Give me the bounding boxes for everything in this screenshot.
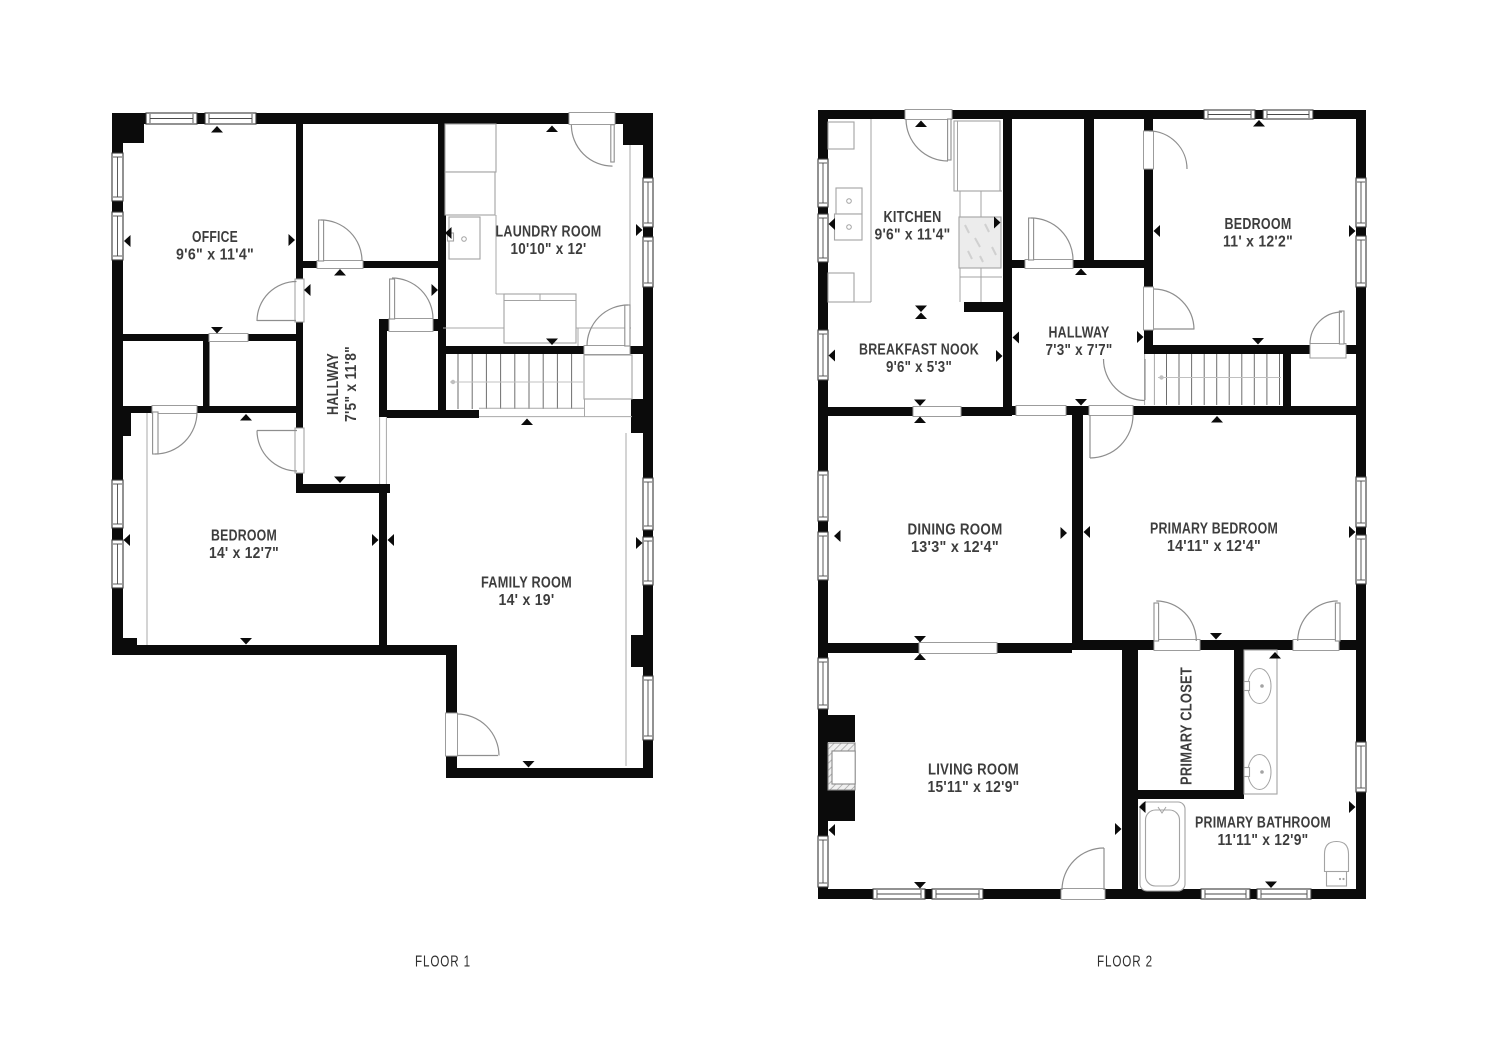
- svg-text:PRIMARY CLOSET: PRIMARY CLOSET: [1179, 667, 1196, 785]
- svg-text:7'5" x 11'8": 7'5" x 11'8": [343, 346, 360, 422]
- svg-text:9'6" x 11'4": 9'6" x 11'4": [176, 247, 254, 264]
- svg-text:OFFICE: OFFICE: [192, 229, 238, 246]
- svg-text:KITCHEN: KITCHEN: [884, 209, 942, 226]
- svg-text:LIVING ROOM: LIVING ROOM: [928, 762, 1019, 779]
- svg-text:BEDROOM: BEDROOM: [1225, 216, 1292, 233]
- svg-text:9'6" x 5'3": 9'6" x 5'3": [886, 359, 952, 376]
- svg-text:BEDROOM: BEDROOM: [211, 528, 277, 545]
- svg-text:13'3" x 12'4": 13'3" x 12'4": [911, 539, 999, 556]
- svg-text:10'10" x 12': 10'10" x 12': [511, 241, 587, 258]
- svg-text:DINING ROOM: DINING ROOM: [908, 522, 1003, 539]
- svg-text:FLOOR 1: FLOOR 1: [415, 954, 471, 971]
- svg-text:14' x 19': 14' x 19': [499, 592, 555, 609]
- svg-text:PRIMARY BATHROOM: PRIMARY BATHROOM: [1195, 815, 1331, 832]
- svg-text:14' x 12'7": 14' x 12'7": [209, 545, 279, 562]
- svg-text:11' x 12'2": 11' x 12'2": [1223, 234, 1293, 251]
- svg-text:14'11" x 12'4": 14'11" x 12'4": [1167, 538, 1261, 555]
- svg-text:HALLWAY: HALLWAY: [325, 353, 342, 415]
- svg-text:HALLWAY: HALLWAY: [1049, 325, 1110, 342]
- svg-text:LAUNDRY ROOM: LAUNDRY ROOM: [496, 224, 602, 241]
- svg-text:FLOOR 2: FLOOR 2: [1097, 954, 1153, 971]
- svg-text:15'11" x 12'9": 15'11" x 12'9": [928, 779, 1020, 796]
- svg-text:BREAKFAST NOOK: BREAKFAST NOOK: [859, 342, 979, 359]
- svg-text:FAMILY ROOM: FAMILY ROOM: [481, 575, 572, 592]
- svg-text:7'3" x 7'7": 7'3" x 7'7": [1046, 342, 1113, 359]
- svg-text:PRIMARY BEDROOM: PRIMARY BEDROOM: [1150, 521, 1278, 538]
- svg-text:9'6" x 11'4": 9'6" x 11'4": [875, 227, 951, 244]
- svg-text:11'11" x 12'9": 11'11" x 12'9": [1218, 832, 1309, 849]
